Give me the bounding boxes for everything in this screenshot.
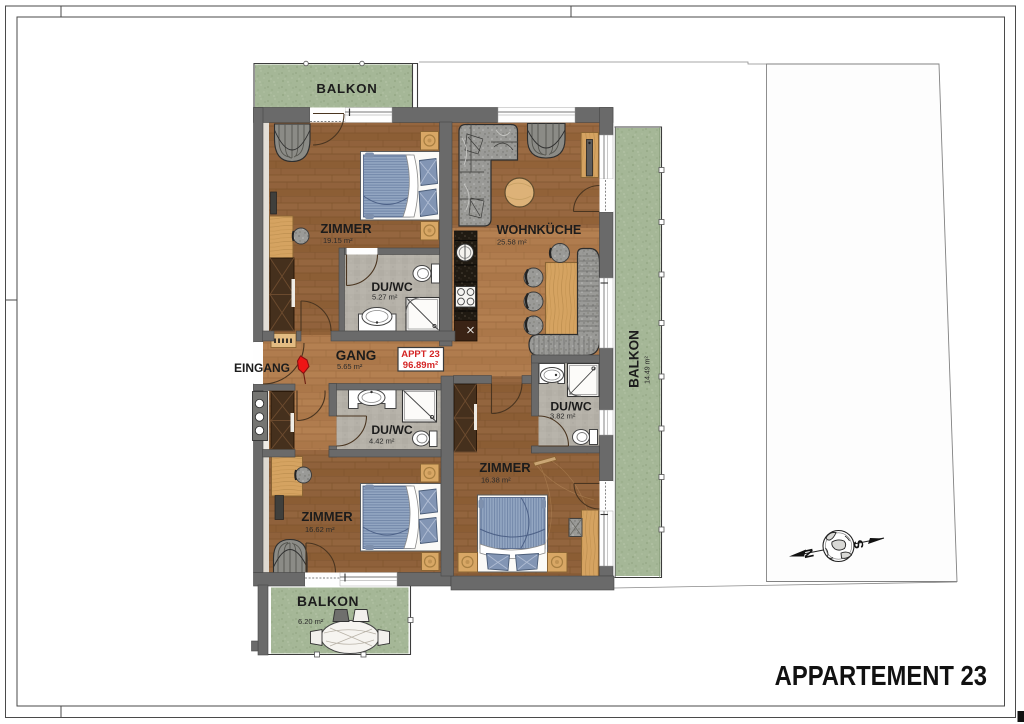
svg-text:BALKON: BALKON — [316, 81, 377, 96]
svg-text:ZIMMER: ZIMMER — [479, 460, 531, 475]
svg-text:16.38 m²: 16.38 m² — [481, 476, 511, 485]
svg-text:DU/WC: DU/WC — [371, 423, 412, 437]
svg-text:5.65 m²: 5.65 m² — [337, 362, 363, 371]
svg-text:16.62 m²: 16.62 m² — [305, 525, 335, 534]
svg-text:19.15 m²: 19.15 m² — [323, 236, 353, 245]
svg-text:ZIMMER: ZIMMER — [301, 509, 353, 524]
svg-text:3.82 m²: 3.82 m² — [550, 412, 576, 421]
svg-text:APPT 23: APPT 23 — [401, 349, 440, 360]
svg-text:EINGANG: EINGANG — [234, 361, 290, 375]
svg-text:6.20 m²: 6.20 m² — [298, 617, 324, 626]
svg-text:96.89m²: 96.89m² — [403, 360, 438, 371]
svg-text:ZIMMER: ZIMMER — [320, 221, 372, 236]
svg-text:25.58 m²: 25.58 m² — [497, 238, 527, 247]
svg-text:BALKON: BALKON — [297, 594, 359, 609]
svg-text:14.49 m²: 14.49 m² — [645, 356, 652, 384]
svg-text:BALKON: BALKON — [627, 330, 642, 388]
svg-text:4.42 m²: 4.42 m² — [369, 437, 395, 446]
svg-text:GANG: GANG — [336, 348, 377, 363]
svg-text:APPARTEMENT 23: APPARTEMENT 23 — [775, 659, 987, 691]
svg-text:WOHNKÜCHE: WOHNKÜCHE — [497, 222, 582, 237]
svg-text:5.27 m²: 5.27 m² — [372, 293, 398, 302]
